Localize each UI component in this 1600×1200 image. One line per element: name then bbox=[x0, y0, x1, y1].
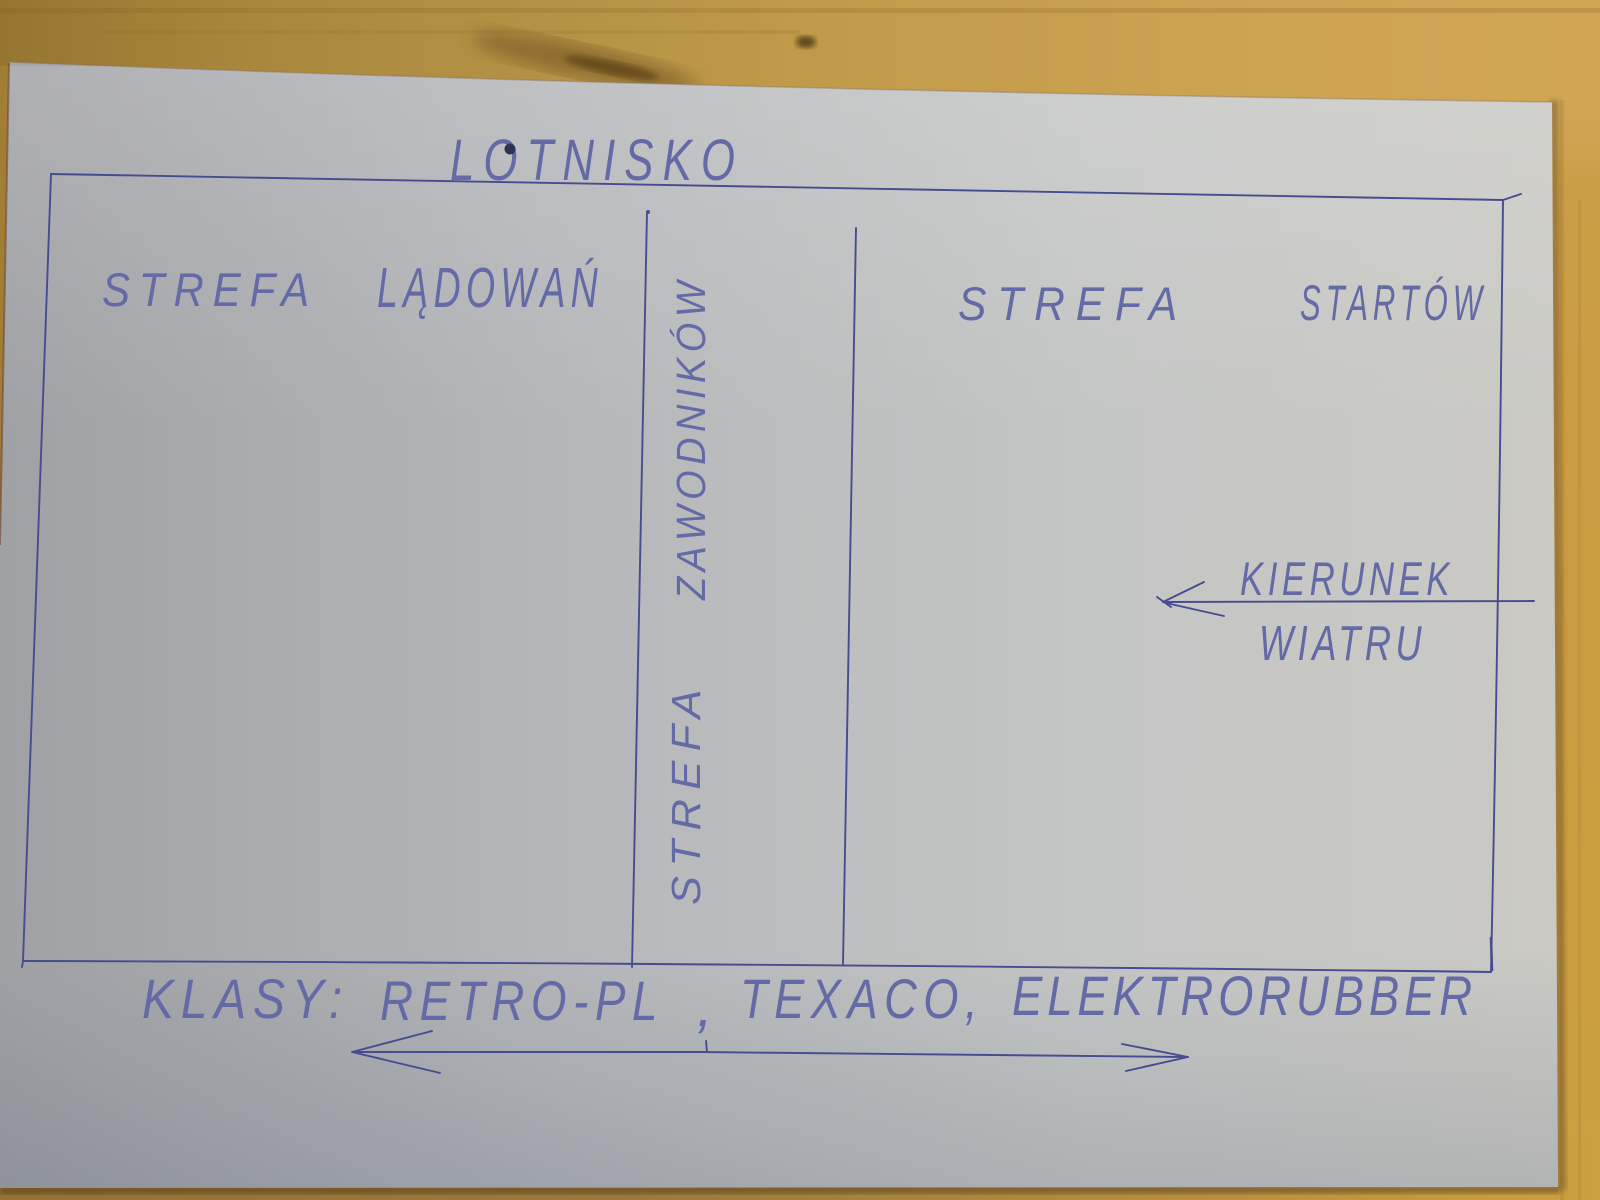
svg-text:KLASY:: KLASY: bbox=[142, 967, 349, 1030]
svg-text:TEXACO,: TEXACO, bbox=[740, 967, 984, 1030]
svg-text:STREFA: STREFA bbox=[663, 680, 709, 905]
svg-text:ELEKTRORUBBER: ELEKTRORUBBER bbox=[1012, 964, 1477, 1027]
svg-text:,: , bbox=[697, 975, 713, 1038]
svg-text:ZAWODNIKÓW: ZAWODNIKÓW bbox=[668, 276, 714, 601]
svg-text:STREFA: STREFA bbox=[102, 263, 318, 316]
svg-text:LOTNISKO: LOTNISKO bbox=[450, 128, 744, 193]
svg-text:RETRO-PL: RETRO-PL bbox=[380, 969, 664, 1032]
svg-text:STARTÓW: STARTÓW bbox=[1300, 275, 1487, 331]
svg-text:WIATRU: WIATRU bbox=[1259, 617, 1426, 671]
svg-text:KIERUNEK: KIERUNEK bbox=[1240, 552, 1454, 605]
svg-text:STREFA: STREFA bbox=[958, 277, 1188, 330]
svg-text:LĄDOWAŃ: LĄDOWAŃ bbox=[377, 256, 603, 320]
